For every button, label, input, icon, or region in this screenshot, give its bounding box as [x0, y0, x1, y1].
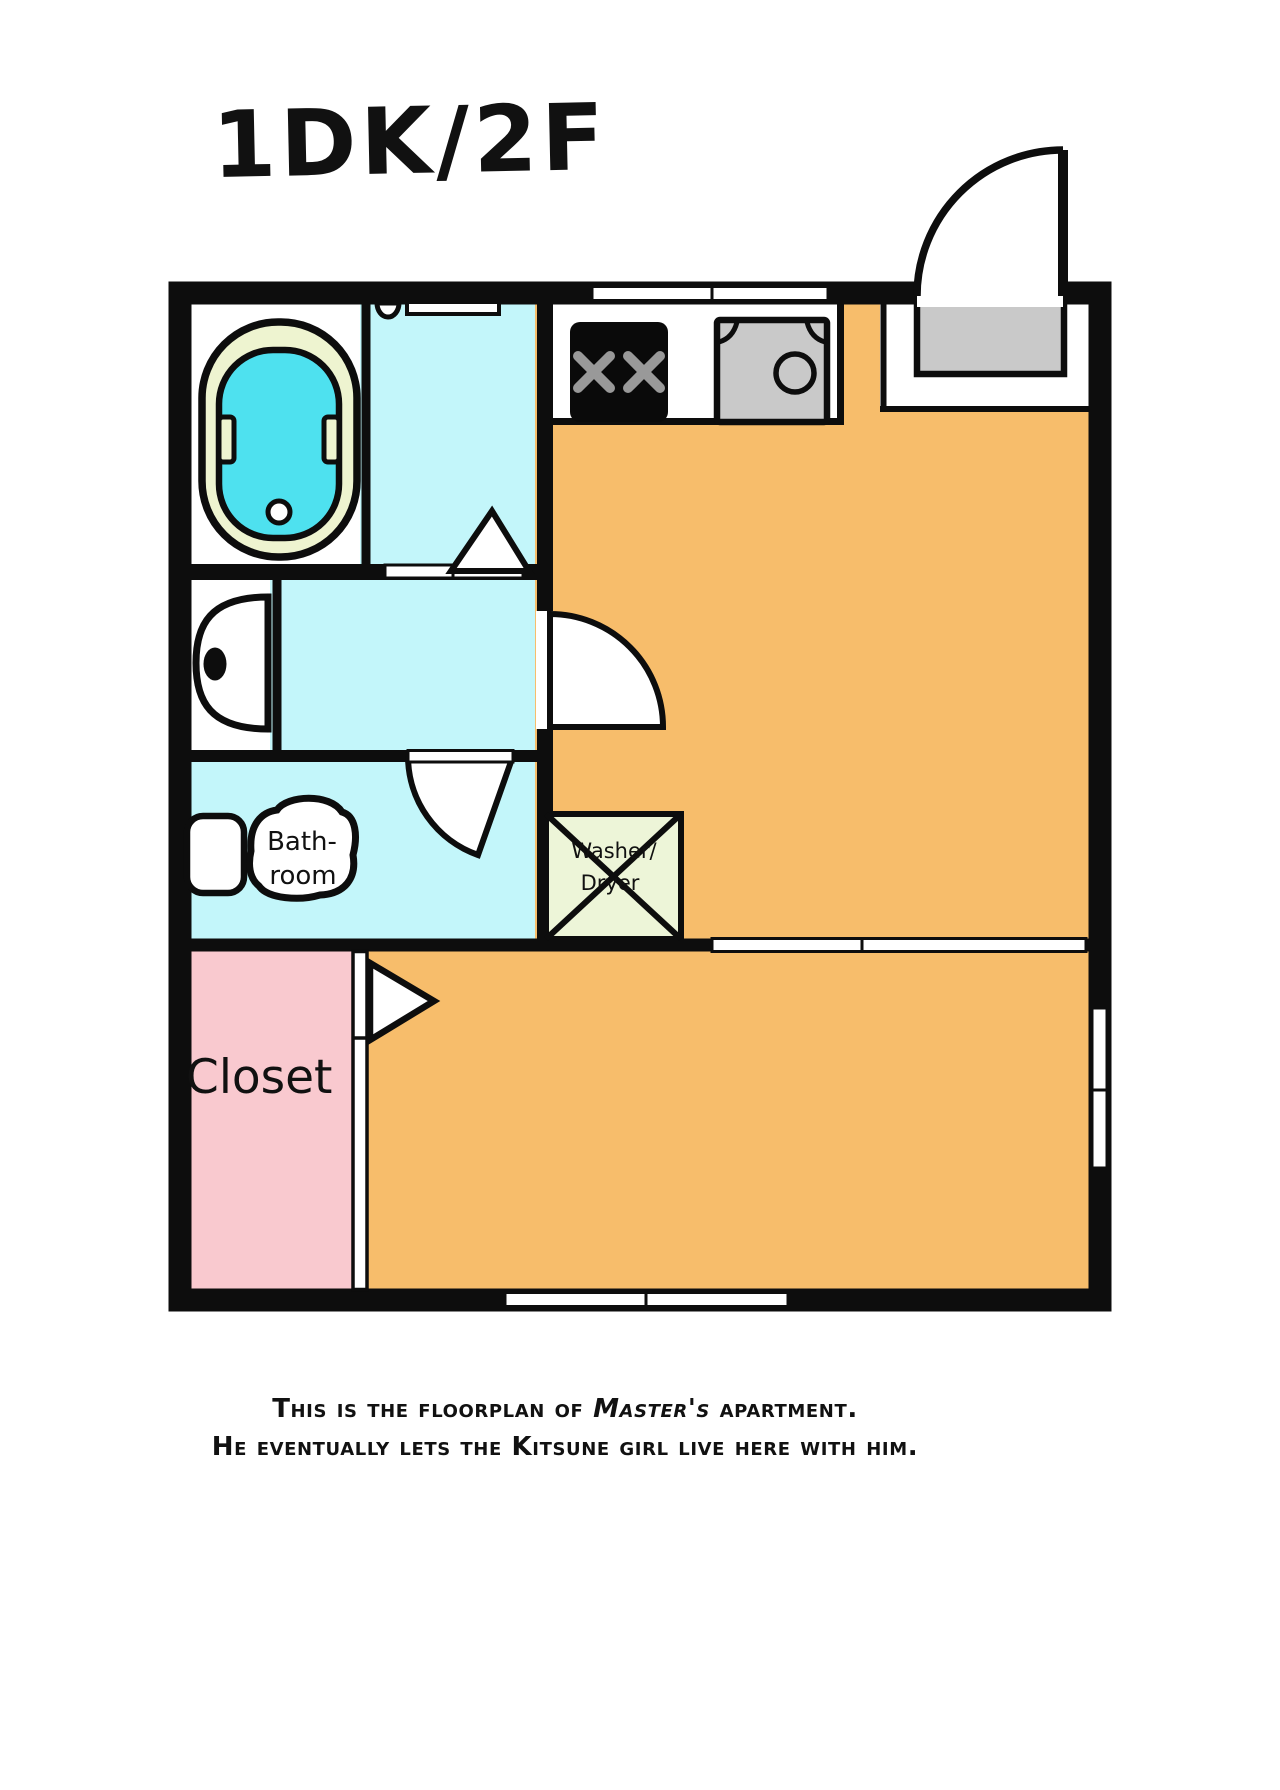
toilet-flush-dot [204, 648, 227, 681]
shower-shelf [407, 302, 499, 314]
shower-head-icon [377, 303, 399, 317]
caption: This is the floorplan of Master's apartm… [158, 1390, 972, 1466]
washer-label-line2: Dryer [581, 871, 640, 895]
caption-emphasis: Master's [593, 1394, 710, 1424]
bathtub-drain [268, 501, 290, 523]
shower-fixtures [377, 302, 499, 317]
comic-floorplan-page: 1DK/2F [0, 0, 1280, 1790]
entry-door [917, 150, 1063, 296]
kitchen-window [592, 287, 828, 301]
floorplan-drawing: Washer/ Dryer Bath- room Closet [0, 0, 1280, 1790]
bath-stool [187, 816, 244, 893]
stove [570, 322, 668, 422]
washroom-floor [270, 565, 548, 765]
entry-mat [917, 303, 1064, 374]
entry-door-arc [917, 150, 1063, 296]
bathroom-label-line1: Bath- [267, 827, 337, 857]
entry-door-opening [917, 279, 1063, 307]
bedroom-east-window [1092, 1008, 1107, 1168]
bathtub [202, 322, 357, 557]
washer-dryer: Washer/ Dryer [546, 814, 681, 939]
bathtub-handle-left [219, 417, 234, 462]
caption-line-1: This is the floorplan of Master's apartm… [158, 1390, 972, 1428]
bathroom-sign: Bath- room [187, 798, 355, 898]
hall-door-threshold [408, 751, 513, 763]
stove-icon [570, 322, 668, 422]
entry-genkan [880, 303, 1089, 409]
shower-room-floor [360, 290, 548, 580]
bedroom-sliding-door [712, 939, 1086, 952]
closet-label: Closet [186, 1050, 332, 1105]
caption-line-2: He eventually lets the Kitsune girl live… [158, 1428, 972, 1466]
toilet [196, 597, 268, 729]
closet-sliding-door [353, 952, 367, 1290]
bathroom-label-line2: room [269, 861, 336, 891]
sink [717, 320, 827, 422]
bathtub-handle-right [324, 417, 339, 462]
closet-floor [185, 950, 357, 1295]
washer-label-line1: Washer/ [571, 839, 657, 863]
